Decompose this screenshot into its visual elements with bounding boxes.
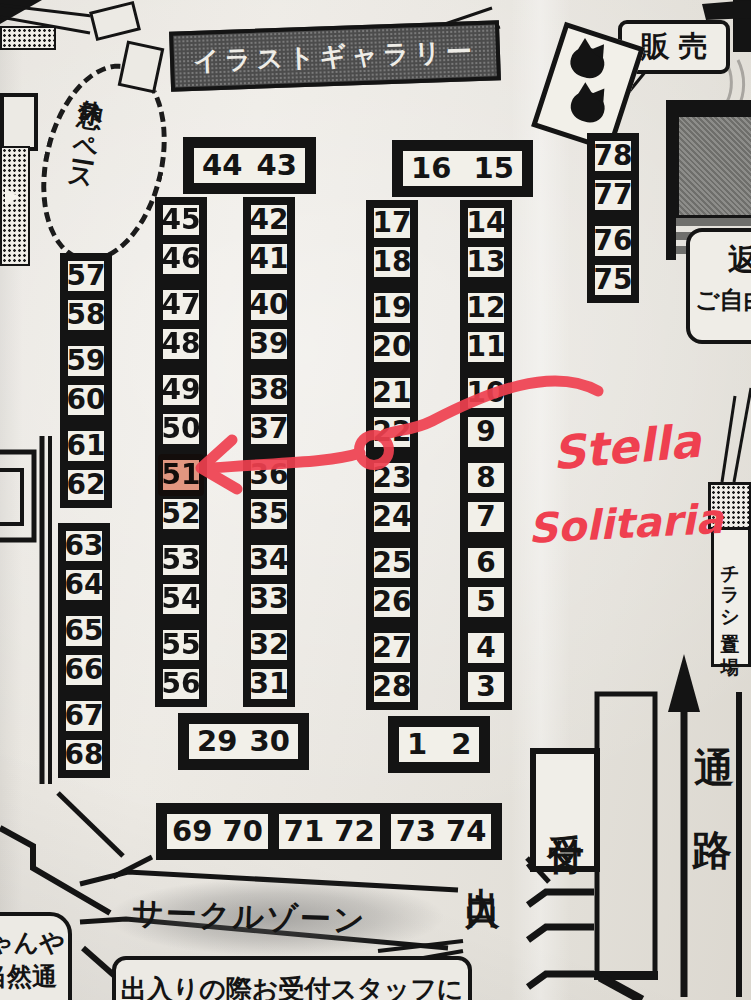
booth-cell-52: 52 [160, 496, 202, 532]
booth-cell-13: 13 [465, 244, 507, 280]
cat-face-icon [567, 43, 609, 82]
booth-row-69-74: 69 7071 7273 74 [156, 803, 502, 860]
booth-box-44-43: 44 43 [183, 137, 316, 194]
booth-cell-60: 60 [65, 382, 107, 418]
booth-column-14-3: 14131211109876543 [460, 200, 512, 710]
booth-cell-76: 76 [592, 223, 634, 259]
booth-group: 4546 [155, 197, 207, 282]
booth-cell-51: 51 [160, 457, 202, 493]
gallery-banner-label: イラストギャラリー [193, 34, 478, 79]
booth-cell-7: 7 [465, 499, 507, 535]
handwriting-circle-name-line2: Solitaria [527, 495, 724, 553]
handwriting-circle-name-line1: Stella [550, 414, 703, 481]
reception-box: 受付 [530, 748, 600, 872]
booth-cell-58: 58 [65, 297, 107, 333]
wall-fixture [0, 26, 56, 50]
booth-cell-68: 68 [63, 737, 105, 773]
booth-column-17-28: 171819202122232425262728 [366, 200, 418, 710]
booth-cell-63: 63 [63, 528, 105, 564]
booth-column-63-68: 636465666768 [58, 523, 110, 778]
booth-label: 1 2 [396, 724, 482, 765]
booth-cell-27: 27 [371, 630, 413, 666]
booth-cell-5: 5 [465, 584, 507, 620]
booth-group: 6364 [58, 523, 110, 608]
booth-cell-21: 21 [371, 375, 413, 411]
booth-cell-40: 40 [248, 287, 290, 323]
booth-column-45-56: 454647484950515253545556 [155, 197, 207, 707]
booth-box-16-15: 16 15 [392, 140, 533, 197]
floor-map-photo: イラストギャラリー 販売 休憩スペース 返 ご自由 44 43 16 15 45… [0, 0, 751, 1000]
notice-text: 出入りの際お受付スタッフに [121, 972, 464, 1000]
booth-cell-56: 56 [160, 666, 202, 702]
booth-cell-22: 22 [371, 414, 413, 450]
booth-cell-48: 48 [160, 326, 202, 362]
notice-bubble-text: ご自由 [695, 284, 751, 316]
booth-cell-53: 53 [160, 542, 202, 578]
booth-cell-18: 18 [371, 244, 413, 280]
aisle-label-char: 路 [692, 830, 732, 870]
booth-cell-20: 20 [371, 329, 413, 365]
booth-cell-6: 6 [465, 545, 507, 581]
booth-cell-23: 23 [371, 460, 413, 496]
booth-cell-49: 49 [160, 372, 202, 408]
booth-group: 5758 [60, 253, 112, 338]
booth-label: 16 15 [400, 148, 525, 189]
booth-cell-50: 50 [160, 411, 202, 447]
booth-cell-78: 78 [592, 138, 634, 174]
left-corner-box: ゃんや 当然通 [0, 912, 72, 1000]
wall-fixture [89, 1, 141, 41]
booth-cell-12: 12 [465, 290, 507, 326]
booth-cell-67: 67 [63, 698, 105, 734]
booth-group: 3837 [243, 367, 295, 452]
circle-zone-label: サークルゾーン [131, 892, 367, 942]
booth-group: 1413 [460, 200, 512, 285]
sales-table-stripe [676, 218, 751, 226]
cat-face-icon [567, 87, 609, 126]
booth-cell-59: 59 [65, 343, 107, 379]
booth-cell-36: 36 [248, 457, 290, 493]
sales-table-area [676, 114, 751, 218]
booth-group: 4748 [155, 282, 207, 367]
booth-group: 2122 [366, 370, 418, 455]
reception-label: 受付 [541, 805, 590, 815]
booth-label: 73 74 [388, 811, 495, 852]
booth-cell-32: 32 [248, 627, 290, 663]
booth-cell-24: 24 [371, 499, 413, 535]
booth-cell-28: 28 [371, 669, 413, 705]
booth-column-42-31: 424140393837363534333231 [243, 197, 295, 707]
booth-box-1-2: 1 2 [388, 716, 490, 773]
booth-cell-39: 39 [248, 326, 290, 362]
booth-cell-65: 65 [63, 613, 105, 649]
booth-column-57-62: 575859606162 [60, 253, 112, 508]
booth-group: 4241 [243, 197, 295, 282]
booth-cell-54: 54 [160, 581, 202, 617]
left-corner-text: 当然通 [0, 960, 57, 993]
booth-cell-42: 42 [248, 202, 290, 238]
booth-group: 3635 [243, 452, 295, 537]
booth-cell-19: 19 [371, 290, 413, 326]
booth-cell-55: 55 [160, 627, 202, 663]
booth-cell-45: 45 [160, 202, 202, 238]
booth-cell-25: 25 [371, 545, 413, 581]
booth-label: 29 30 [186, 721, 301, 762]
booth-group: 43 [460, 625, 512, 710]
booth-group: 7675 [587, 218, 639, 303]
arrow-icon [5, 188, 19, 206]
booth-label: 71 72 [276, 811, 383, 852]
booth-column-78-75: 78777675 [587, 133, 639, 303]
booth-group: 2324 [366, 455, 418, 540]
booth-cell-46: 46 [160, 241, 202, 277]
booth-cell-62: 62 [65, 467, 107, 503]
booth-group: 3433 [243, 537, 295, 622]
left-corner-text: ゃんや [0, 926, 65, 959]
notice-box: 出入りの際お受付スタッフに [112, 956, 472, 1000]
flyer-stand-signbox: チラシ置き場 [711, 527, 751, 667]
booth-cell-34: 34 [248, 542, 290, 578]
booth-cell-26: 26 [371, 584, 413, 620]
booth-group: 6162 [60, 423, 112, 508]
booth-group: 87 [460, 455, 512, 540]
booth-cell-35: 35 [248, 496, 290, 532]
booth-cell-37: 37 [248, 411, 290, 447]
booth-cell-77: 77 [592, 177, 634, 213]
booth-group: 7877 [587, 133, 639, 218]
booth-group: 5354 [155, 537, 207, 622]
booth-group: 5960 [60, 338, 112, 423]
booth-cell-8: 8 [465, 460, 507, 496]
booth-cell-47: 47 [160, 287, 202, 323]
wall-fixture [118, 41, 165, 94]
booth-label: 44 43 [191, 145, 308, 186]
booth-label: 69 70 [164, 811, 271, 852]
booth-cell-4: 4 [465, 630, 507, 666]
booth-cell-75: 75 [592, 262, 634, 298]
booth-group: 109 [460, 370, 512, 455]
booth-group: 5556 [155, 622, 207, 707]
booth-group: 1211 [460, 285, 512, 370]
booth-cell-41: 41 [248, 241, 290, 277]
booth-cell-57: 57 [65, 258, 107, 294]
notice-bubble-char: 返 [728, 240, 751, 281]
wall-fixture [0, 146, 30, 266]
booth-group: 1920 [366, 285, 418, 370]
booth-group: 2728 [366, 625, 418, 710]
booth-group: 4950 [155, 367, 207, 452]
booth-group: 65 [460, 540, 512, 625]
booth-cell-10: 10 [465, 375, 507, 411]
aisle-label-char: 通 [694, 748, 734, 788]
booth-cell-64: 64 [63, 567, 105, 603]
booth-cell-9: 9 [465, 414, 507, 450]
booth-group: 1718 [366, 200, 418, 285]
gallery-banner: イラストギャラリー [169, 20, 501, 91]
booth-group: 4039 [243, 282, 295, 367]
booth-cell-11: 11 [465, 329, 507, 365]
booth-cell-3: 3 [465, 669, 507, 705]
booth-group: 6566 [58, 608, 110, 693]
notice-bubble: 返 ご自由 [686, 228, 751, 344]
booth-cell-66: 66 [63, 652, 105, 688]
booth-cell-17: 17 [371, 205, 413, 241]
wall-fixture [0, 93, 38, 151]
booth-cell-31: 31 [248, 666, 290, 702]
booth-group: 6768 [58, 693, 110, 778]
booth-cell-61: 61 [65, 428, 107, 464]
booth-cell-38: 38 [248, 372, 290, 408]
booth-cell-33: 33 [248, 581, 290, 617]
booth-cell-14: 14 [465, 205, 507, 241]
booth-group: 5152 [155, 452, 207, 537]
booth-group: 3231 [243, 622, 295, 707]
flyer-stand-label: チラシ置き場 [718, 551, 744, 644]
booth-box-29-30: 29 30 [178, 713, 309, 770]
booth-group: 2526 [366, 540, 418, 625]
